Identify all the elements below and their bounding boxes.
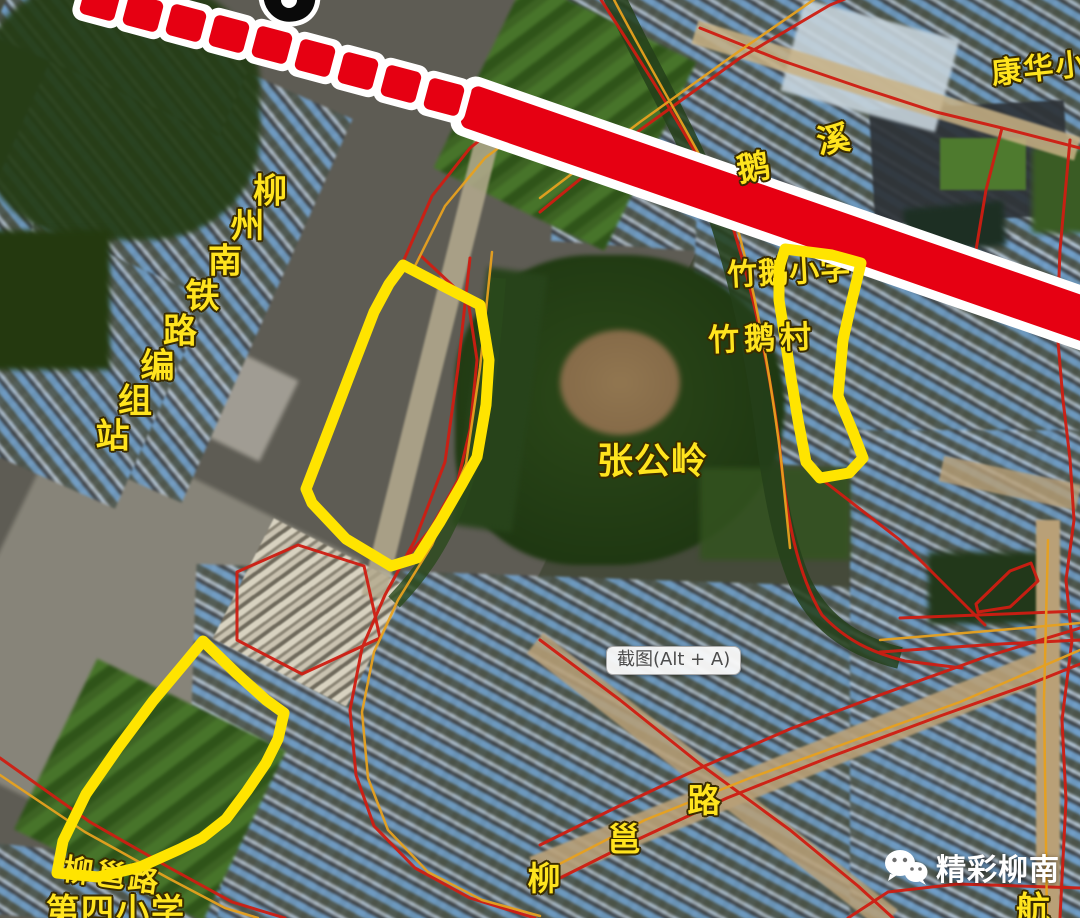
railyard-concrete <box>0 416 362 884</box>
map-label-char: 路 <box>688 774 721 822</box>
planned-route-solid <box>446 72 1080 363</box>
map-label-char: 鹅 <box>733 138 774 191</box>
fields-bottomleft <box>14 659 286 918</box>
railway-station-label: 柳州南铁路编组站 <box>0 0 1080 918</box>
map-label-char: 南 <box>208 234 242 283</box>
liuyong-road-west-label: 柳邕路 <box>60 844 164 901</box>
map-label-char: 铁 <box>186 269 220 318</box>
map-label-char: 路 <box>163 304 197 353</box>
map-label-char: 组 <box>118 374 152 423</box>
rowhouse-estate <box>213 518 408 706</box>
factory-courtyard <box>940 138 1026 190</box>
zhue-village-label: 竹鹅村 <box>707 311 817 360</box>
urban-patch <box>0 843 223 918</box>
kanghua-estate-label: 康华小区 <box>989 35 1080 92</box>
pond <box>903 201 1007 255</box>
highlight-area-west <box>306 265 489 566</box>
trees-topleft <box>0 0 260 240</box>
labels-under: 竹鹅小学 柳邕路 <box>0 0 1080 918</box>
satellite-map-screenshot: 竹鹅小学 柳邕路 <box>0 0 1080 918</box>
road-horizontal-right <box>939 456 1080 511</box>
urban-patch <box>684 220 1080 481</box>
map-label-char: 溪 <box>813 110 854 163</box>
satellite-background <box>0 0 1080 918</box>
orange-road-lines <box>0 0 1080 918</box>
wechat-icon <box>884 848 930 886</box>
hill-bare-patch <box>560 330 680 435</box>
urban-patch <box>0 221 209 508</box>
fourth-primary-school-label: 第四小学 <box>46 884 186 918</box>
planned-route-dashes <box>70 0 474 126</box>
trees-left <box>0 230 110 370</box>
partial-logo-icon <box>261 0 318 24</box>
map-label-char: 邕 <box>608 813 641 861</box>
creek-vegetation <box>612 0 900 658</box>
annotation-shapes <box>0 0 1080 918</box>
watermark: 精彩柳南 <box>884 845 1060 889</box>
map-label-char: 州 <box>231 199 265 248</box>
map-label-char: 柳 <box>528 852 561 900</box>
map-label-char: 柳 <box>253 164 287 213</box>
urban-patch <box>551 0 1080 278</box>
fields-topcenter <box>434 0 697 251</box>
trees-south-of-hill <box>700 468 850 560</box>
liuyong-road-center-label: 柳邕路 <box>0 0 1080 918</box>
map-label-char: 站 <box>96 409 130 458</box>
screenshot-tooltip[interactable]: 截图(Alt + A) <box>606 646 741 675</box>
trees-right <box>1032 148 1080 233</box>
zhue-primary-school-label: 竹鹅小学 <box>726 244 852 294</box>
factory-block <box>869 100 1070 225</box>
highlight-area-east <box>779 249 863 478</box>
road-overlay-lines <box>0 0 1080 918</box>
watermark-text: 精彩柳南 <box>936 845 1060 889</box>
trees-bottomright <box>928 552 1050 624</box>
red-road-lines <box>0 0 1080 918</box>
goose-creek-label: 鹅溪 <box>0 0 1080 918</box>
zhanggongling-hill <box>455 255 785 565</box>
railyard-texture <box>0 0 835 918</box>
road-along-yard <box>361 109 505 600</box>
urban-patch <box>0 0 260 137</box>
zhanggong-ridge-label: 张公岭 <box>597 432 708 484</box>
highlight-area-south <box>57 641 284 877</box>
labels-over: 柳州南铁路编组站 鹅溪 柳邕路 康华小区 竹鹅村 张公岭 第四小学 航 <box>0 0 1080 918</box>
railyard-pad <box>151 328 298 461</box>
road-cross <box>527 633 898 918</box>
map-label-char: 编 <box>141 339 175 388</box>
route-white-border <box>446 72 1080 360</box>
creek-trees <box>452 267 548 533</box>
warehouse-roofs <box>780 0 959 132</box>
creek-vegetation-south <box>394 278 498 602</box>
route-red-band <box>459 84 1080 355</box>
urban-patch <box>0 0 352 503</box>
road-topright <box>691 21 1080 161</box>
